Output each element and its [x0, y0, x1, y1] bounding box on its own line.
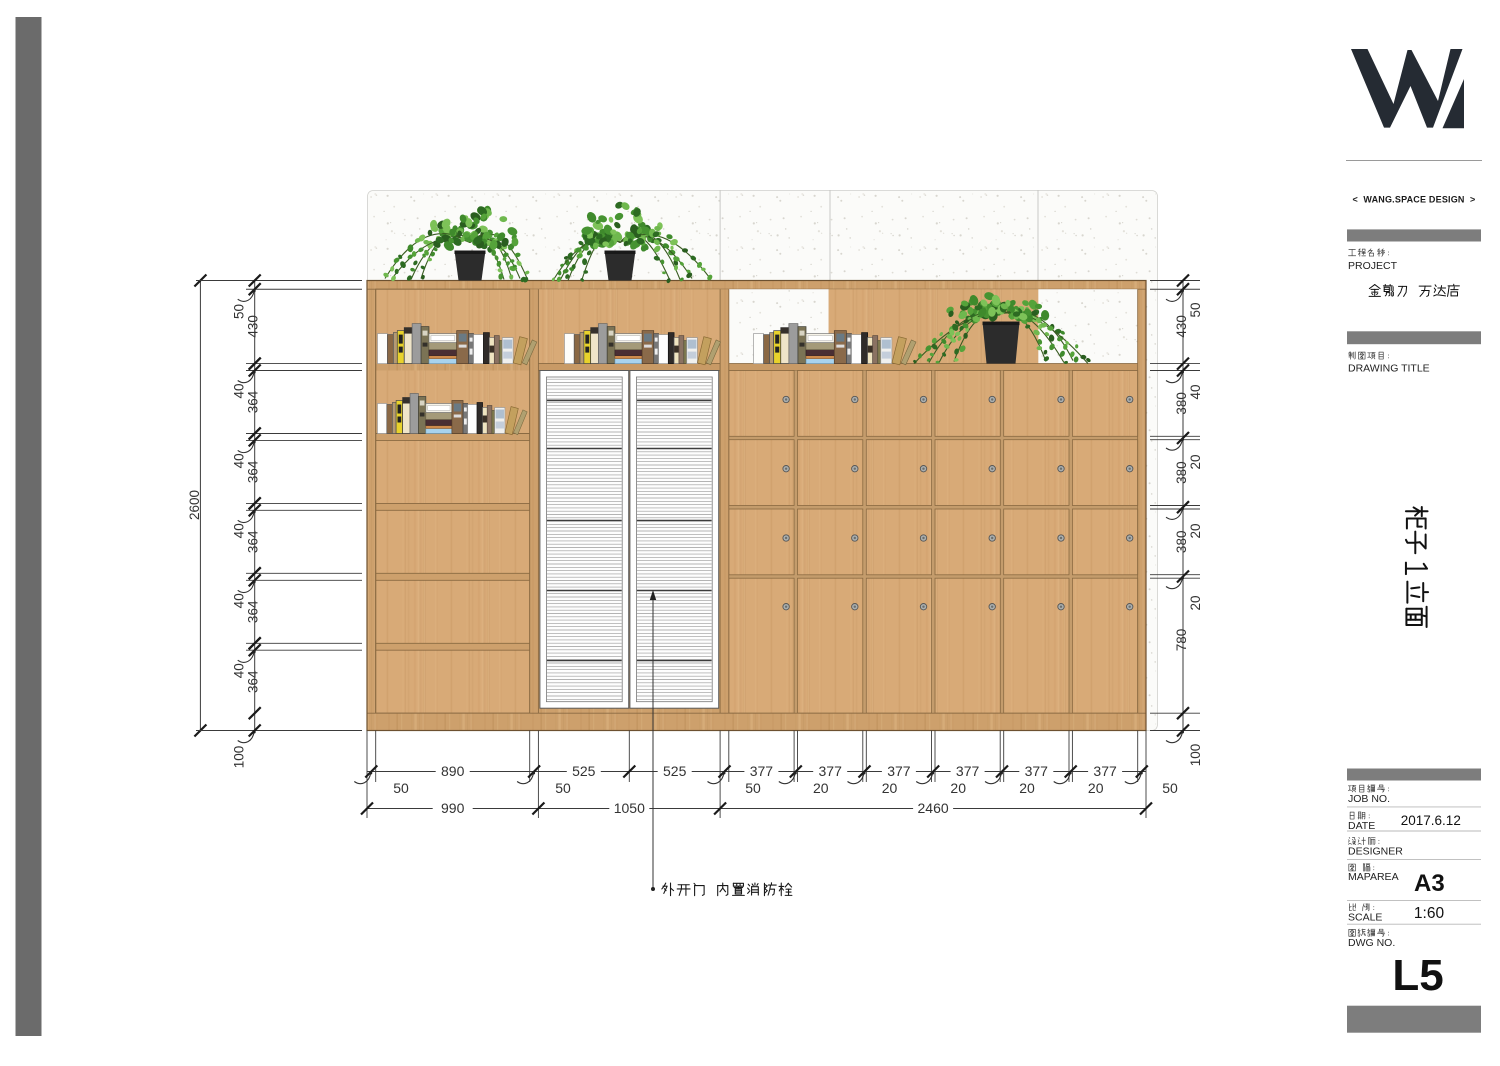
- svg-text:40: 40: [1188, 384, 1203, 399]
- svg-text:2460: 2460: [918, 800, 949, 816]
- svg-text:20: 20: [882, 780, 898, 796]
- svg-text:40: 40: [232, 663, 247, 678]
- svg-text:A3: A3: [1414, 870, 1445, 897]
- svg-text:50: 50: [393, 780, 409, 796]
- svg-text:50: 50: [1162, 780, 1178, 796]
- svg-text:40: 40: [232, 383, 247, 398]
- svg-text:20: 20: [1088, 780, 1104, 796]
- svg-text:20: 20: [813, 780, 829, 796]
- svg-text:380: 380: [1174, 392, 1189, 415]
- svg-text:40: 40: [232, 593, 247, 608]
- svg-text:990: 990: [441, 800, 465, 816]
- svg-text:L5: L5: [1392, 951, 1443, 1000]
- svg-text:2600: 2600: [187, 490, 202, 520]
- svg-text:377: 377: [956, 763, 980, 779]
- svg-text:364: 364: [245, 600, 260, 623]
- svg-text:DRAWING TITLE: DRAWING TITLE: [1348, 363, 1430, 375]
- svg-text:20: 20: [1019, 780, 1035, 796]
- svg-text:780: 780: [1174, 629, 1189, 652]
- svg-text:DATE: DATE: [1348, 820, 1375, 832]
- svg-text:364: 364: [245, 460, 260, 483]
- svg-text:525: 525: [572, 763, 596, 779]
- svg-text:2017.6.12: 2017.6.12: [1401, 813, 1461, 828]
- svg-text:40: 40: [232, 453, 247, 468]
- svg-text:50: 50: [232, 304, 247, 319]
- svg-text:377: 377: [887, 763, 911, 779]
- svg-text:364: 364: [245, 530, 260, 553]
- svg-text:40: 40: [232, 523, 247, 538]
- svg-text:100: 100: [1188, 744, 1203, 767]
- svg-text:50: 50: [745, 780, 761, 796]
- svg-text:20: 20: [1188, 454, 1203, 469]
- svg-text:430: 430: [1174, 315, 1189, 338]
- svg-text:1050: 1050: [614, 800, 645, 816]
- svg-text:1:60: 1:60: [1414, 905, 1445, 922]
- svg-text:377: 377: [1093, 763, 1117, 779]
- svg-text:SCALE: SCALE: [1348, 911, 1382, 923]
- svg-text:377: 377: [1025, 763, 1049, 779]
- svg-text:20: 20: [1188, 595, 1203, 610]
- svg-text:377: 377: [819, 763, 843, 779]
- svg-text:50: 50: [1188, 302, 1203, 317]
- svg-text:380: 380: [1174, 461, 1189, 484]
- svg-text:< WANG.SPACE DESIGN >: < WANG.SPACE DESIGN >: [1353, 195, 1476, 205]
- svg-text:364: 364: [245, 670, 260, 693]
- svg-text:DESIGNER: DESIGNER: [1348, 846, 1403, 858]
- svg-text:377: 377: [750, 763, 774, 779]
- svg-text:20: 20: [1188, 523, 1203, 538]
- svg-text:JOB NO.: JOB NO.: [1348, 793, 1390, 805]
- svg-text:380: 380: [1174, 531, 1189, 554]
- svg-text:364: 364: [245, 390, 260, 413]
- svg-text:890: 890: [441, 763, 465, 779]
- svg-text:430: 430: [245, 315, 260, 338]
- svg-text:20: 20: [950, 780, 966, 796]
- svg-text:MAPAREA: MAPAREA: [1348, 871, 1399, 883]
- svg-text:DWG NO.: DWG NO.: [1348, 937, 1395, 949]
- svg-text:PROJECT: PROJECT: [1348, 260, 1398, 272]
- svg-text:100: 100: [232, 746, 247, 769]
- svg-text:50: 50: [555, 780, 571, 796]
- svg-text:525: 525: [663, 763, 687, 779]
